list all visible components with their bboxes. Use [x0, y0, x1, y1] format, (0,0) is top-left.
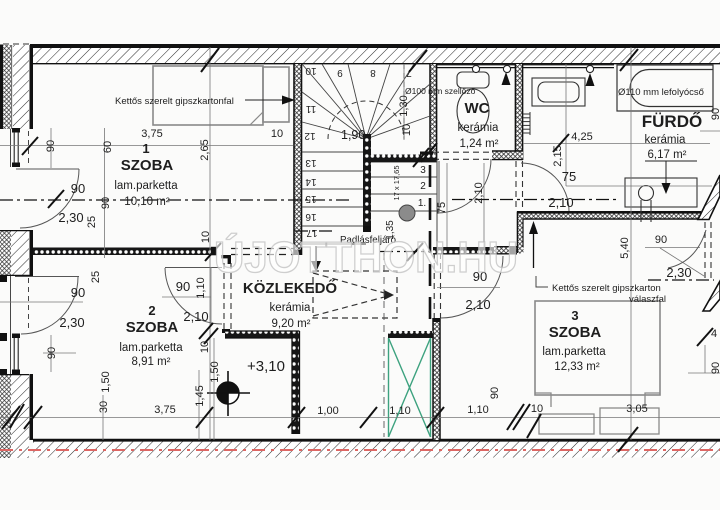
svg-text:válaszfal: válaszfal [629, 294, 666, 305]
svg-text:90: 90 [655, 234, 667, 246]
svg-text:+3,10: +3,10 [247, 358, 285, 375]
svg-text:16: 16 [305, 211, 317, 222]
svg-text:25: 25 [90, 271, 102, 283]
svg-text:13: 13 [305, 157, 317, 168]
svg-text:lam.parketta: lam.parketta [119, 342, 183, 354]
svg-text:4: 4 [711, 328, 717, 340]
svg-text:90: 90 [71, 181, 85, 196]
svg-text:9,20 m²: 9,20 m² [272, 318, 311, 330]
svg-text:kerámia: kerámia [458, 122, 500, 134]
svg-text:2,30: 2,30 [58, 210, 83, 225]
svg-text:2: 2 [148, 303, 155, 318]
svg-text:25: 25 [86, 216, 98, 228]
svg-text:kerámia: kerámia [645, 134, 687, 146]
svg-text:Ø110 mm lefolyócső: Ø110 mm lefolyócső [618, 87, 704, 98]
svg-text:90: 90 [176, 279, 190, 294]
svg-text:3: 3 [420, 165, 426, 176]
svg-text:90: 90 [100, 197, 112, 209]
svg-text:10: 10 [305, 65, 317, 76]
svg-text:2,10: 2,10 [183, 309, 208, 324]
svg-text:SZOBA: SZOBA [549, 324, 602, 341]
svg-text:2,15: 2,15 [552, 145, 564, 166]
svg-text:1,50: 1,50 [100, 371, 112, 392]
svg-text:WC: WC [465, 100, 490, 117]
svg-text:1,10: 1,10 [389, 405, 410, 417]
svg-text:lam.parketta: lam.parketta [114, 180, 178, 192]
svg-text:1.: 1. [418, 198, 426, 209]
svg-text:2: 2 [420, 181, 426, 192]
svg-text:kerámia: kerámia [270, 302, 312, 314]
svg-text:11: 11 [305, 103, 316, 114]
svg-text:90: 90 [45, 140, 57, 152]
svg-text:10: 10 [401, 124, 413, 136]
svg-text:2,10: 2,10 [465, 297, 490, 312]
svg-text:12: 12 [304, 130, 316, 141]
svg-text:90: 90 [710, 362, 720, 374]
svg-text:30: 30 [98, 401, 110, 413]
svg-text:90: 90 [71, 285, 85, 300]
svg-text:Ø100 mm szellőző: Ø100 mm szellőző [405, 86, 476, 96]
svg-text:3: 3 [571, 308, 578, 323]
svg-text:SZOBA: SZOBA [121, 157, 174, 174]
svg-text:17 x 17,65: 17 x 17,65 [392, 165, 401, 200]
svg-text:60: 60 [102, 141, 114, 153]
svg-text:2,30: 2,30 [59, 315, 84, 330]
svg-text:1,90: 1,90 [341, 128, 365, 142]
svg-text:75: 75 [436, 202, 448, 214]
svg-text:1,10: 1,10 [195, 277, 207, 298]
svg-text:1,50: 1,50 [209, 361, 221, 382]
svg-text:90: 90 [46, 347, 58, 359]
svg-text:2,10: 2,10 [473, 182, 485, 203]
svg-text:12,33 m²: 12,33 m² [554, 361, 600, 373]
svg-text:10: 10 [271, 128, 283, 140]
svg-text:8: 8 [370, 67, 376, 78]
svg-text:15: 15 [305, 193, 317, 204]
svg-text:lam.parketta: lam.parketta [542, 346, 606, 358]
svg-text:1,45: 1,45 [194, 385, 206, 406]
svg-text:10: 10 [531, 403, 543, 415]
svg-text:3,05: 3,05 [626, 403, 647, 415]
svg-text:8,91 m²: 8,91 m² [132, 356, 171, 368]
svg-text:1: 1 [142, 141, 149, 156]
svg-text:14: 14 [305, 176, 317, 187]
svg-text:2,65: 2,65 [199, 139, 211, 160]
svg-text:1,10: 1,10 [467, 404, 488, 416]
svg-text:1,00: 1,00 [317, 405, 338, 417]
svg-text:FÜRDŐ: FÜRDŐ [642, 112, 702, 131]
svg-text:4,25: 4,25 [571, 131, 592, 143]
svg-text:10,10 m²: 10,10 m² [124, 196, 170, 208]
svg-text:10: 10 [199, 341, 211, 353]
svg-text:5,40: 5,40 [619, 237, 631, 258]
svg-text:SZOBA: SZOBA [126, 319, 179, 336]
svg-text:10: 10 [200, 231, 212, 243]
svg-text:90: 90 [489, 387, 501, 399]
svg-text:1,24 m²: 1,24 m² [460, 138, 499, 150]
svg-text:3,75: 3,75 [141, 128, 162, 140]
svg-text:6,17 m²: 6,17 m² [648, 149, 687, 161]
svg-text:3,75: 3,75 [154, 404, 175, 416]
svg-text:Kettős szerelt gipszkartonfal: Kettős szerelt gipszkartonfal [115, 96, 234, 107]
svg-text:75: 75 [562, 169, 576, 184]
svg-text:90: 90 [710, 108, 720, 120]
svg-text:2,10: 2,10 [548, 195, 573, 210]
svg-text:9: 9 [337, 67, 343, 78]
svg-text:1,30: 1,30 [398, 95, 410, 116]
svg-text:ÚJOTTHON.HU: ÚJOTTHON.HU [214, 232, 518, 282]
svg-text:Kettős szerelt gipszkarton: Kettős szerelt gipszkarton [552, 283, 661, 294]
